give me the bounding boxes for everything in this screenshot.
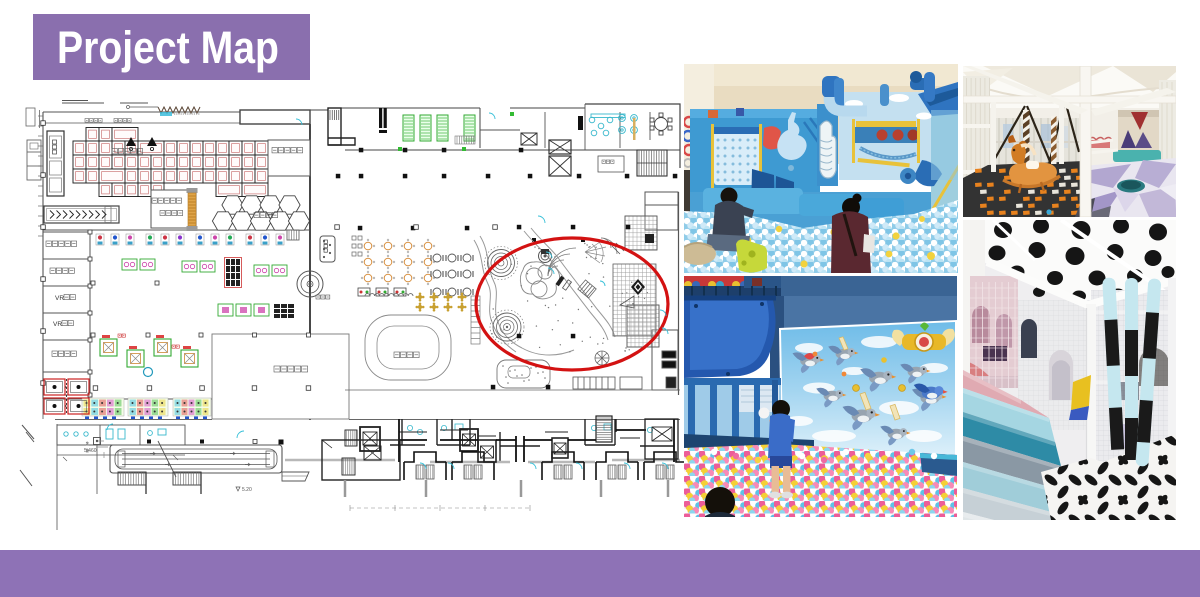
svg-text:VR: VR <box>53 321 62 328</box>
svg-text:VR: VR <box>55 295 64 302</box>
svg-text:5.20: 5.20 <box>242 487 252 493</box>
